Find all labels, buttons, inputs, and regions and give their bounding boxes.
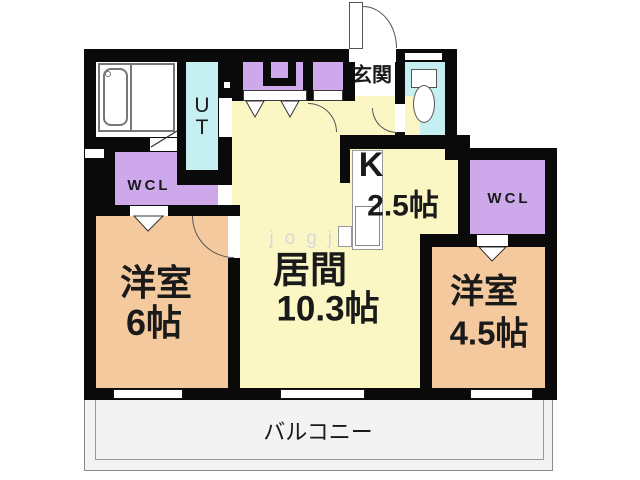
closet-door-track [313, 90, 343, 101]
label-wcl-left: WCL [127, 178, 170, 194]
window [113, 389, 183, 399]
window [280, 389, 365, 399]
wall-segment [545, 157, 557, 400]
label-western6-area: 6帖 [126, 304, 182, 342]
wall-segment [458, 160, 470, 235]
label-wcl-right: WCL [487, 191, 530, 207]
label-utility-line1: U [194, 95, 209, 117]
label-utility-line2: T [194, 117, 209, 139]
label-western45-area: 4.5帖 [450, 317, 529, 352]
wall-segment [177, 152, 186, 185]
closet-pillar [263, 78, 296, 86]
label-living: 居間 [273, 252, 347, 291]
label-living-area: 10.3帖 [276, 292, 379, 329]
label-entrance: 玄関 [352, 66, 392, 87]
door-opening [150, 138, 177, 151]
wall-segment [96, 152, 115, 207]
window [405, 53, 442, 60]
label-kitchen: K [359, 148, 384, 184]
toilet-bowl [413, 85, 435, 123]
bath-divider [130, 63, 132, 132]
wall-segment [457, 148, 557, 160]
label-kitchen-area: 2.5帖 [367, 190, 439, 222]
wall-segment [340, 135, 350, 183]
room-wcl-left-ext [177, 183, 218, 207]
kitchen-counter-small [338, 226, 352, 247]
door-opening [219, 98, 232, 137]
bathtub [103, 68, 128, 126]
door-opening [349, 49, 396, 62]
window [470, 389, 533, 399]
label-utility: U T [194, 95, 209, 139]
vent-notch [85, 149, 104, 158]
label-balcony: バルコニー [263, 420, 373, 443]
wall-segment [177, 60, 186, 137]
wall-segment [96, 205, 240, 216]
wall-notch [224, 82, 230, 88]
wall-segment [186, 170, 232, 185]
door-opening [130, 206, 168, 216]
label-western6: 洋室 [120, 264, 192, 302]
wall-segment [420, 247, 432, 390]
closet-door-track [243, 90, 307, 101]
label-western45: 洋室 [450, 275, 518, 311]
entrance-door-swing-arc [363, 6, 397, 48]
wall-segment [232, 60, 243, 101]
entrance-door-leaf [349, 2, 363, 49]
door-opening [477, 235, 508, 246]
floor-plan: jogjo 玄関 U T WCL WCL K 2.5帖 居間 10.3帖 洋室 … [0, 0, 640, 480]
wall-segment [84, 49, 96, 400]
